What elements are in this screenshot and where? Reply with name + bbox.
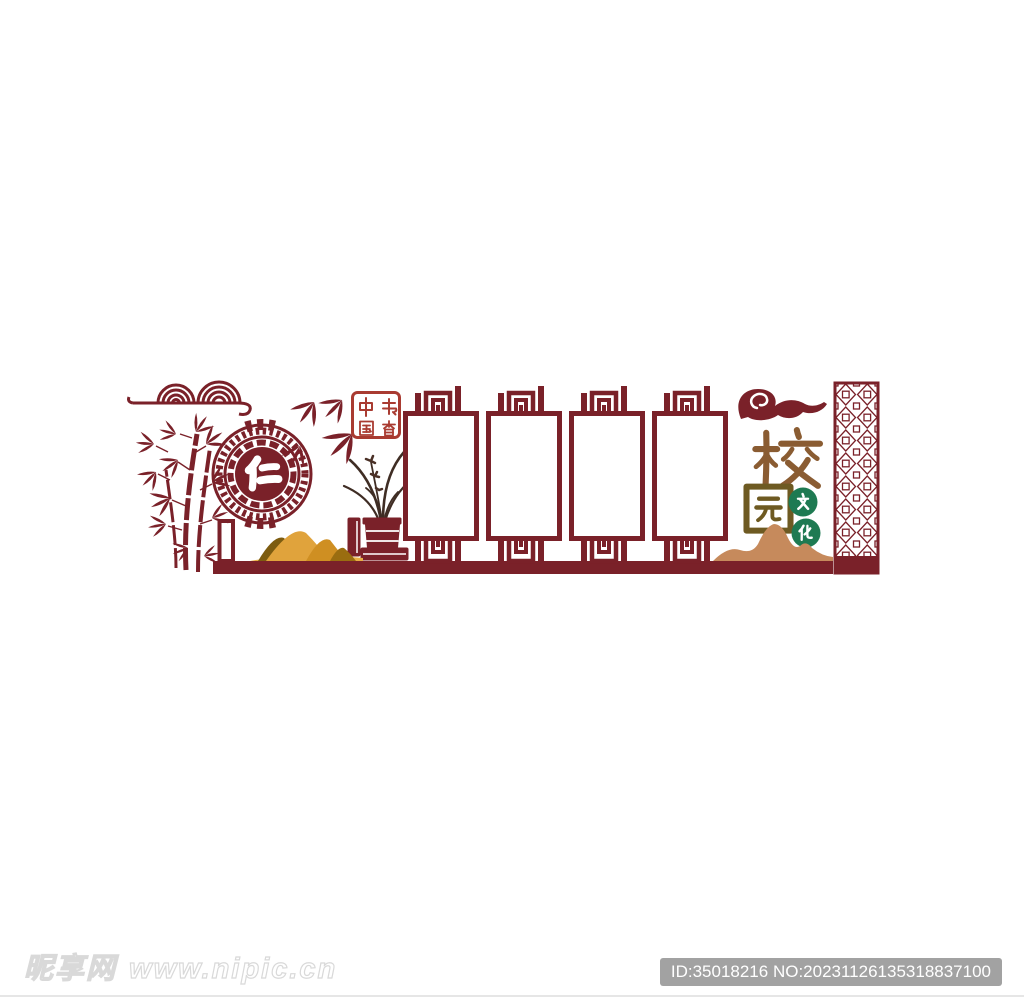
campus-title-char-xiao	[755, 430, 820, 486]
culture-wall-artwork	[0, 0, 1024, 999]
lattice-column	[835, 383, 878, 573]
seal-stamp	[353, 393, 400, 438]
ren-medallion	[213, 424, 311, 523]
gold-mountains-icon	[250, 531, 363, 561]
photo-frame-2	[489, 386, 560, 561]
watermark-site-url: www.nipic.cn	[129, 953, 337, 985]
image-id-text: ID:35018216 NO:20231126135318837100	[671, 962, 991, 981]
medallion-stand	[220, 521, 234, 561]
campus-title-char-yuan	[747, 487, 791, 531]
watermark: 昵享网www.nipic.cn	[24, 945, 337, 987]
photo-frame-4	[655, 386, 726, 561]
image-id-badge: ID:35018216 NO:20231126135318837100	[660, 958, 1002, 986]
ruyi-cloud-icon	[738, 389, 827, 420]
page-bottom-divider	[0, 995, 1024, 997]
culture-badge-wen	[789, 488, 818, 517]
watermark-site-name: 昵享网	[24, 953, 117, 985]
culture-badge-hua	[792, 519, 821, 548]
photo-frame-1	[406, 386, 477, 561]
photo-frame-3	[572, 386, 643, 561]
cloud-arcs-icon	[129, 382, 251, 415]
